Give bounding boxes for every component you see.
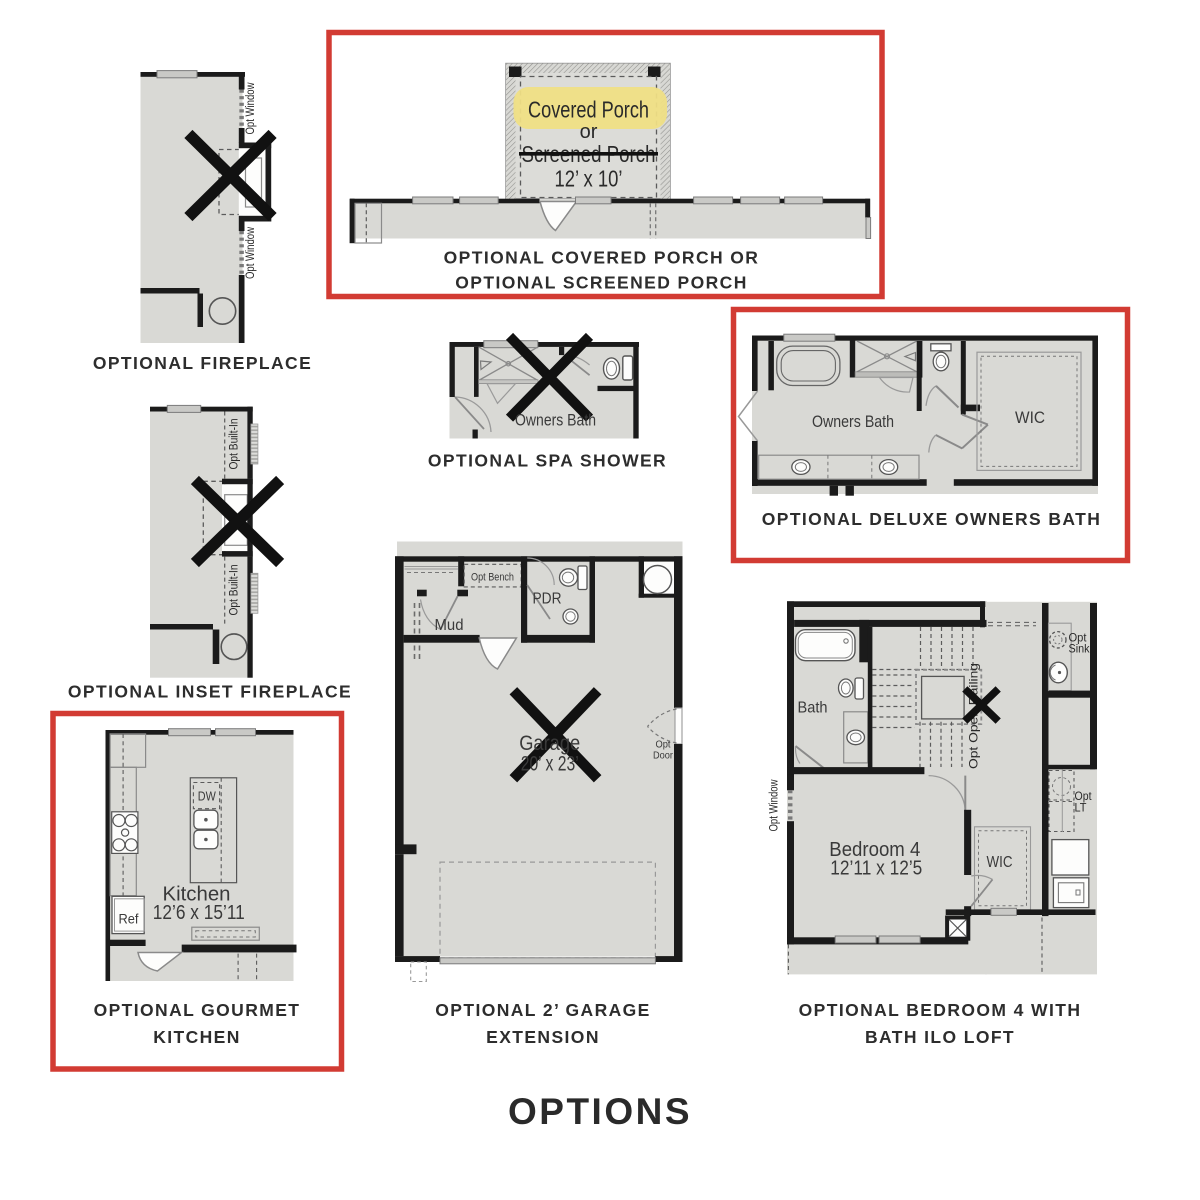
svg-text:Covered Porch: Covered Porch — [528, 97, 649, 123]
svg-text:Opt Built-In: Opt Built-In — [229, 419, 241, 470]
svg-text:EXTENSION: EXTENSION — [486, 1027, 600, 1047]
svg-text:KITCHEN: KITCHEN — [153, 1027, 241, 1047]
svg-text:Garage: Garage — [519, 731, 580, 755]
svg-text:Ref: Ref — [119, 911, 139, 927]
svg-text:BATH ILO LOFT: BATH ILO LOFT — [865, 1027, 1015, 1047]
svg-text:Opt Bench: Opt Bench — [471, 572, 514, 584]
svg-text:OPTIONAL FIREPLACE: OPTIONAL FIREPLACE — [93, 353, 312, 373]
svg-text:Owners Bath: Owners Bath — [515, 412, 596, 430]
svg-text:20’ x 23’: 20’ x 23’ — [521, 753, 579, 776]
svg-text:OPTIONAL COVERED PORCH OR: OPTIONAL COVERED PORCH OR — [444, 248, 760, 268]
svg-text:OPTIONAL SPA SHOWER: OPTIONAL SPA SHOWER — [428, 451, 667, 471]
svg-text:OPTIONAL BEDROOM 4 WITH: OPTIONAL BEDROOM 4 WITH — [799, 1000, 1082, 1020]
svg-text:12’6 x 15’11: 12’6 x 15’11 — [153, 901, 245, 924]
svg-text:OPTIONAL SCREENED PORCH: OPTIONAL SCREENED PORCH — [455, 273, 747, 293]
svg-text:LT: LT — [1075, 801, 1088, 815]
svg-text:OPTIONS: OPTIONS — [508, 1091, 692, 1132]
svg-text:Bath: Bath — [798, 700, 828, 717]
svg-text:PDR: PDR — [533, 591, 562, 608]
svg-text:Owners Bath: Owners Bath — [812, 412, 894, 431]
svg-text:WIC: WIC — [1015, 408, 1045, 427]
svg-text:Opt Window: Opt Window — [245, 82, 257, 135]
svg-text:Opt Window: Opt Window — [245, 226, 257, 279]
svg-text:Mud: Mud — [435, 617, 464, 634]
svg-text:DW: DW — [198, 790, 216, 804]
svg-text:12’ x 10’: 12’ x 10’ — [555, 166, 623, 192]
svg-text:WIC: WIC — [987, 854, 1013, 871]
svg-text:or: or — [580, 121, 598, 143]
svg-text:Opt Built-In: Opt Built-In — [229, 565, 241, 616]
svg-text:Opt Window: Opt Window — [769, 779, 781, 832]
svg-text:OPTIONAL GOURMET: OPTIONAL GOURMET — [94, 1000, 301, 1020]
svg-text:Sink: Sink — [1069, 642, 1091, 656]
svg-text:OPTIONAL INSET FIREPLACE: OPTIONAL INSET FIREPLACE — [68, 682, 352, 702]
svg-text:OPTIONAL 2’ GARAGE: OPTIONAL 2’ GARAGE — [435, 1000, 650, 1020]
svg-text:OPTIONAL DELUXE OWNERS BATH: OPTIONAL DELUXE OWNERS BATH — [762, 509, 1102, 529]
svg-text:Door: Door — [653, 750, 673, 762]
svg-text:12’11 x 12’5: 12’11 x 12’5 — [830, 857, 922, 880]
